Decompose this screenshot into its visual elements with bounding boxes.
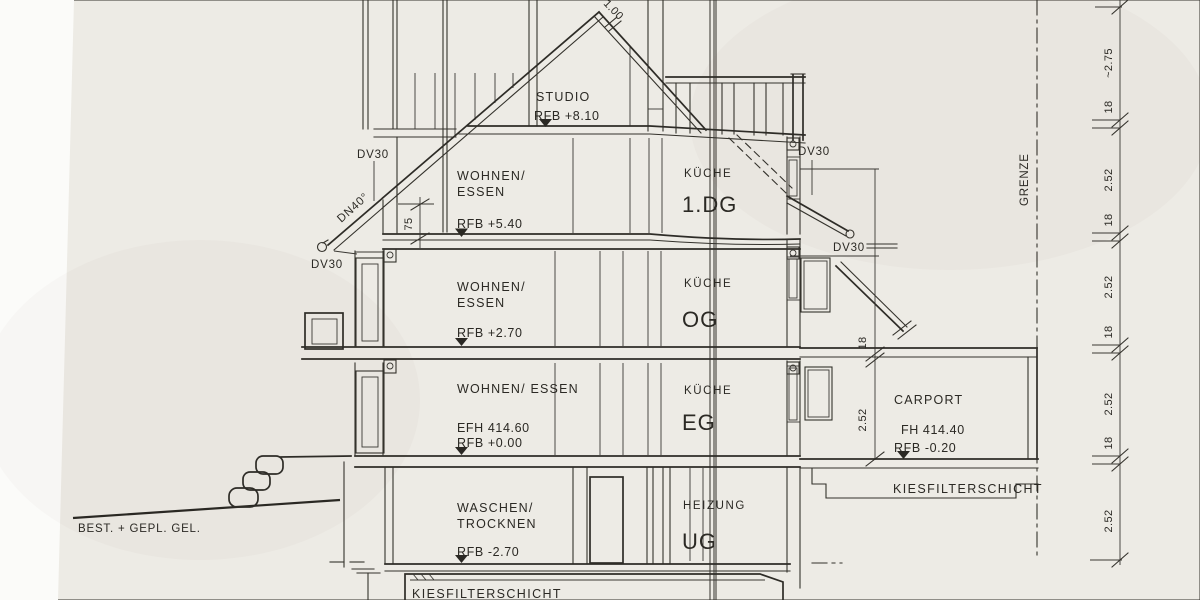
dg1-floor-slab <box>383 234 800 239</box>
level-label-og: RFB +2.70 <box>457 326 523 340</box>
room-label-og-line1: WOHNEN/ <box>457 280 526 294</box>
room-label-dg1-line1: WOHNEN/ <box>457 169 526 183</box>
carport-elevation: FH 414.40 <box>901 423 965 437</box>
level-label-eg: RFB +0.00 <box>457 436 523 450</box>
dim-chain-7: 18 <box>1103 436 1115 449</box>
carport-slab-dim: 18 <box>857 336 869 349</box>
gravel-label-carport: KIESFILTERSCHICHT <box>893 482 1043 496</box>
room-label-og-kitchen: KÜCHE <box>684 278 732 290</box>
room-label-ug-line2: TROCKNEN <box>457 517 537 531</box>
bearing-symbol <box>384 249 396 262</box>
og-right-window <box>789 259 797 298</box>
ug-door <box>590 477 623 563</box>
scanned-section-drawing: STUDIO RFB +8.10 WOHNEN/ ESSEN RFB +5.40… <box>0 0 1200 600</box>
downpipe-label: DN40° <box>335 191 371 225</box>
floor-code-eg: EG <box>682 410 716 435</box>
gravel-label-building: KIESFILTERSCHICHT <box>412 587 562 600</box>
dim-chain-4: 2.52 <box>1103 275 1115 298</box>
dv30-left-top: DV30 <box>357 149 389 161</box>
room-label-eg: WOHNEN/ ESSEN <box>457 382 579 396</box>
dim-chain-2: 2.52 <box>1103 168 1115 191</box>
dim-chain-6: 2.52 <box>1103 392 1115 415</box>
room-label-eg-kitchen: KÜCHE <box>684 385 732 397</box>
strut <box>836 266 903 331</box>
carport-level: RFB -0.20 <box>894 441 956 455</box>
room-label-dg1-kitchen: KÜCHE <box>684 168 732 180</box>
floor-code-ug: UG <box>682 529 717 554</box>
paper-mottle <box>0 240 420 560</box>
terrain-label: BEST. + GEPL. GEL. <box>78 523 201 535</box>
gutter-left <box>318 243 327 252</box>
level-label-dg1: RFB +5.40 <box>457 217 523 231</box>
level-label-studio: RFB +8.10 <box>534 109 600 123</box>
knee-dim: 75 <box>403 217 415 230</box>
dv30-right-top: DV30 <box>798 146 830 158</box>
room-label-ug-heating: HEIZUNG <box>683 500 746 512</box>
dim-chain-5: 18 <box>1103 325 1115 338</box>
carport-label: CARPORT <box>894 393 963 407</box>
eg-level <box>355 360 832 467</box>
dim-chain-3: 18 <box>1103 213 1115 226</box>
dv30-right-mid: DV30 <box>833 242 865 254</box>
room-label-studio: STUDIO <box>536 90 590 104</box>
building-section-svg: STUDIO RFB +8.10 WOHNEN/ ESSEN RFB +5.40… <box>0 0 1200 600</box>
room-label-og-line2: ESSEN <box>457 296 505 310</box>
floor-code-og: OG <box>682 307 718 332</box>
eg-right-window <box>789 368 797 420</box>
carport-height-dim: 2.52 <box>857 408 869 431</box>
left-rafter <box>328 12 599 245</box>
eg-elevation-window <box>805 367 832 420</box>
dv30-left-mid: DV30 <box>311 259 343 271</box>
dim-chain-8: 2.52 <box>1103 509 1115 532</box>
level-label-ug: RFB -2.70 <box>457 545 519 559</box>
dim-chain-1: 18 <box>1103 100 1115 113</box>
room-label-ug-line1: WASCHEN/ <box>457 501 534 515</box>
boundary-label: GRENZE <box>1019 153 1031 206</box>
ug-level <box>330 462 842 600</box>
floor-code-dg1: 1.DG <box>682 192 737 217</box>
og-elevation-window <box>801 258 830 312</box>
room-label-dg1-line2: ESSEN <box>457 185 505 199</box>
elevation-label-eg: EFH 414.60 <box>457 421 530 435</box>
dim-chain-0: ~2.75 <box>1103 48 1115 78</box>
